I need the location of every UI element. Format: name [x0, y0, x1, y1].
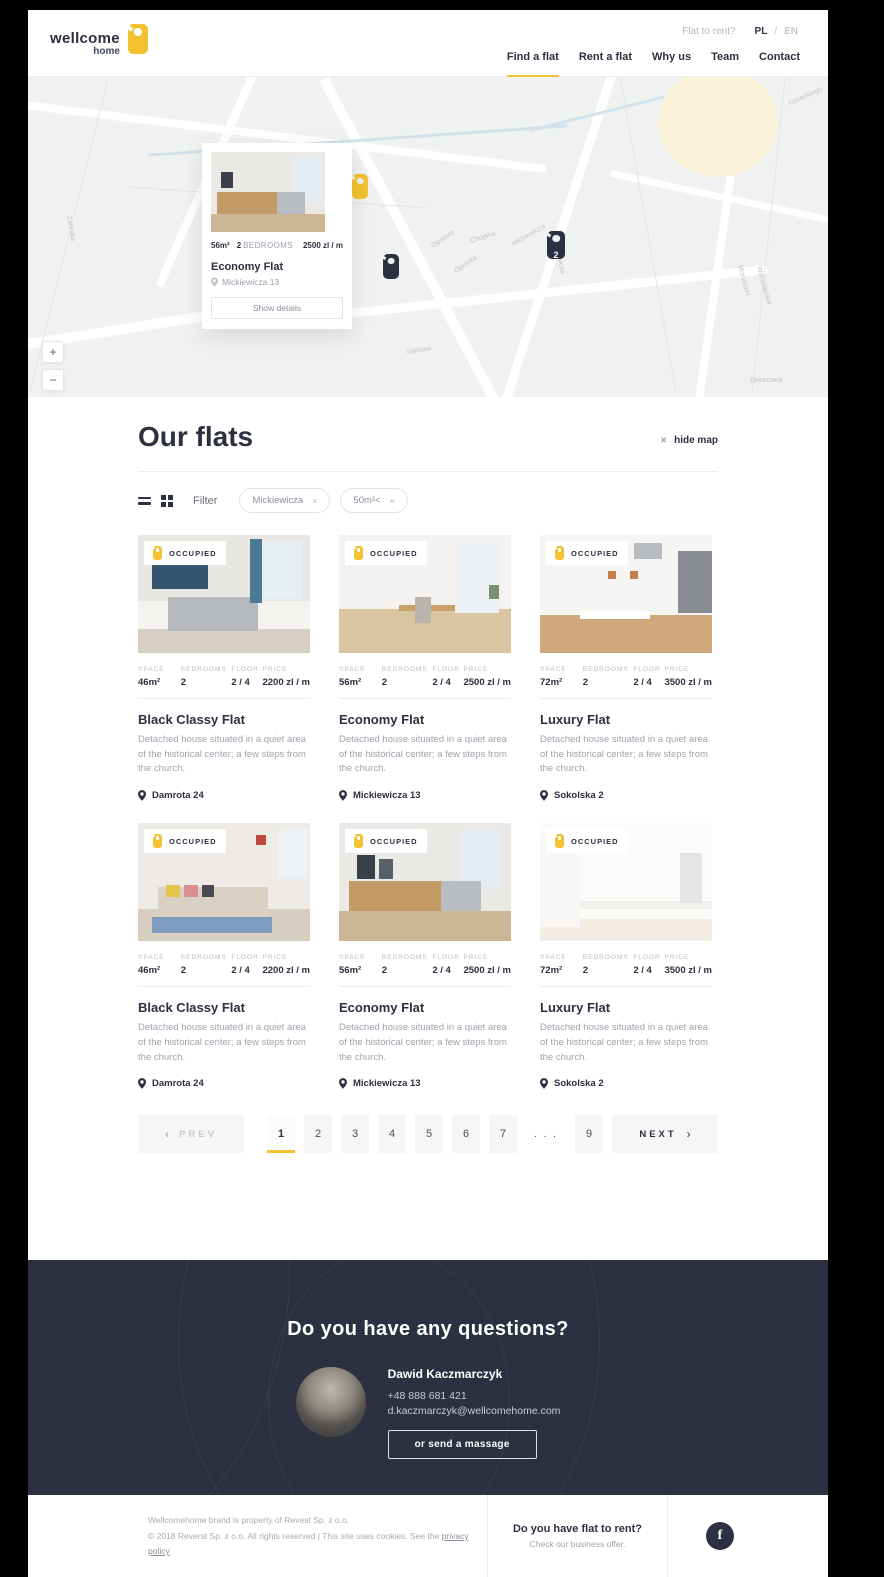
- stat-label-bedrooms: BEDROOMS: [382, 954, 433, 961]
- popup-flat-photo: [211, 152, 325, 232]
- door-hanger-icon: [555, 834, 564, 848]
- map-marker-cluster[interactable]: 2: [547, 231, 565, 264]
- flat-title[interactable]: Luxury Flat: [540, 1000, 712, 1015]
- stat-label-bedrooms: BEDROOMS: [583, 666, 634, 673]
- stat-value-price: 3500 zl / m: [664, 965, 712, 976]
- flat-stats: SPACE46m² BEDROOMS2 FLOOR2 / 4 PRICE2200…: [138, 954, 310, 987]
- hide-map-button[interactable]: × hide map: [660, 433, 718, 453]
- flat-photo[interactable]: OCCUPIED: [339, 535, 511, 653]
- flat-photo[interactable]: OCCUPIED: [540, 535, 712, 653]
- filter-chip[interactable]: 50m²<×: [340, 488, 407, 513]
- flat-address-text: Damrota 24: [152, 1078, 204, 1089]
- marker-count: 2: [547, 250, 565, 260]
- footer: Wellcomehome brand is property of Revest…: [28, 1495, 828, 1577]
- flats-header: Our flats × hide map: [138, 397, 718, 472]
- street-label: Chopina: [470, 230, 497, 245]
- stat-value-floor: 2 / 4: [432, 677, 463, 688]
- nav-item-find-a-flat[interactable]: Find a flat: [507, 51, 559, 76]
- stat-value-space: 72m²: [540, 677, 583, 688]
- flat-description: Detached house situated in a quiet area …: [138, 1021, 310, 1065]
- stat-label-space: SPACE: [138, 954, 181, 961]
- street-label: Opolska: [430, 229, 455, 249]
- door-hanger-icon: [153, 546, 162, 560]
- nav-item-why-us[interactable]: Why us: [652, 51, 691, 76]
- pagination: ‹ PREV 1234567. . .9 NEXT ›: [138, 1115, 718, 1153]
- stat-label-bedrooms: BEDROOMS: [382, 666, 433, 673]
- door-hanger-logo-icon: [128, 24, 148, 54]
- location-pin-icon: [540, 1078, 548, 1089]
- our-flats-section: Our flats × hide map Filter Mickiewicza×…: [28, 397, 828, 1153]
- flat-stats: SPACE56m² BEDROOMS2 FLOOR2 / 4 PRICE2500…: [339, 666, 511, 699]
- location-pin-icon: [339, 1078, 347, 1089]
- location-pin-icon: [339, 790, 347, 801]
- location-pin-icon: [540, 790, 548, 801]
- contact-phone[interactable]: +48 888 681 421: [388, 1390, 467, 1402]
- rent-question[interactable]: Do you have flat to rent?: [513, 1523, 642, 1535]
- street-label: Mickiewicza: [511, 223, 547, 248]
- flat-address-text: Mickiewicza 13: [353, 1078, 421, 1089]
- contact-email[interactable]: d.kaczmarczyk@wellcomehome.com: [388, 1405, 561, 1417]
- footer-social: f: [668, 1495, 828, 1577]
- map-zoom-controls: + −: [42, 341, 64, 391]
- flat-description: Detached house situated in a quiet area …: [339, 733, 511, 777]
- popup-bedrooms-label: BEDROOMS: [243, 241, 293, 250]
- flat-address-text: Sokolska 2: [554, 1078, 604, 1089]
- contact-info: Dawid Kaczmarczyk +48 888 681 421 d.kacz…: [388, 1367, 561, 1459]
- chip-label: 50m²<: [353, 495, 380, 506]
- flat-title[interactable]: Economy Flat: [339, 712, 511, 727]
- flat-title[interactable]: Black Classy Flat: [138, 1000, 310, 1015]
- occupied-badge: OCCUPIED: [144, 829, 226, 853]
- stat-value-floor: 2 / 4: [633, 677, 664, 688]
- contact-row: Dawid Kaczmarczyk +48 888 681 421 d.kacz…: [28, 1367, 828, 1459]
- door-hanger-icon: [153, 834, 162, 848]
- occupied-badge: OCCUPIED: [345, 829, 427, 853]
- flat-address: Damrota 24: [138, 1078, 310, 1089]
- send-message-button[interactable]: or send a massage: [388, 1430, 537, 1459]
- popup-bedrooms-count: 2: [237, 241, 241, 250]
- location-pin-icon: [138, 1078, 146, 1089]
- stat-label-space: SPACE: [339, 666, 382, 673]
- page-number-9[interactable]: 9: [575, 1115, 603, 1153]
- stat-label-price: PRICE: [262, 666, 287, 673]
- prev-page-button[interactable]: ‹ PREV: [138, 1115, 244, 1153]
- occupied-label: OCCUPIED: [370, 837, 418, 846]
- map-area-highlight: [658, 77, 778, 177]
- page-title: Our flats: [138, 421, 253, 453]
- popup-title: Economy Flat: [211, 261, 343, 273]
- logo-text: wellcome home: [50, 30, 120, 57]
- contact-name: Dawid Kaczmarczyk: [388, 1367, 503, 1381]
- next-page-button[interactable]: NEXT ›: [612, 1115, 718, 1153]
- flat-stats: SPACE72m² BEDROOMS2 FLOOR2 / 4 PRICE3500…: [540, 954, 712, 987]
- page-number-5[interactable]: 5: [415, 1115, 443, 1153]
- page-number-7[interactable]: 7: [489, 1115, 517, 1153]
- page-number-2[interactable]: 2: [304, 1115, 332, 1153]
- map-marker-yellow[interactable]: [352, 174, 368, 204]
- filter-chips: Mickiewicza×50m²<×: [239, 488, 417, 513]
- nav-item-rent-a-flat[interactable]: Rent a flat: [579, 51, 632, 76]
- stat-label-price: PRICE: [664, 954, 689, 961]
- stat-value-price: 2200 zl / m: [262, 965, 310, 976]
- stat-value-space: 72m²: [540, 965, 583, 976]
- flat-card: OCCUPIED SPACE46m² BEDROOMS2 FLOOR2 / 4 …: [138, 823, 310, 1089]
- hide-map-label: hide map: [674, 435, 718, 446]
- stat-value-bedrooms: 2: [382, 677, 433, 688]
- map[interactable]: OpolskaOpolskaChopinaMickiewiczaMickiewi…: [28, 77, 828, 397]
- questions-title: Do you have any questions?: [28, 1260, 828, 1341]
- location-pin-icon: [211, 277, 218, 287]
- stat-label-floor: FLOOR: [432, 954, 463, 961]
- door-hanger-icon: [354, 546, 363, 560]
- grid-view-icon[interactable]: [161, 495, 173, 507]
- chip-label: Mickiewicza: [252, 495, 303, 506]
- stat-value-price: 3500 zl / m: [664, 677, 712, 688]
- filter-chip[interactable]: Mickiewicza×: [239, 488, 330, 513]
- stat-value-space: 46m²: [138, 677, 181, 688]
- stat-label-space: SPACE: [339, 954, 382, 961]
- flat-card: OCCUPIED SPACE72m² BEDROOMS2 FLOOR2 / 4 …: [540, 535, 712, 801]
- stat-label-space: SPACE: [540, 666, 583, 673]
- rent-subtitle: Check our business offer.: [530, 1539, 626, 1549]
- flat-description: Detached house situated in a quiet area …: [138, 733, 310, 777]
- popup-address: Mickiewicza 13: [211, 277, 343, 287]
- occupied-badge: OCCUPIED: [144, 541, 226, 565]
- logo[interactable]: wellcome home: [50, 24, 148, 57]
- occupied-badge: OCCUPIED: [546, 541, 628, 565]
- popup-stats: 56m² 2 BEDROOMS 2500 zl / m: [211, 241, 343, 250]
- stat-label-floor: FLOOR: [432, 666, 463, 673]
- door-hanger-marker-icon: [383, 254, 399, 279]
- nav-item-team[interactable]: Team: [711, 51, 739, 76]
- flat-title[interactable]: Economy Flat: [339, 1000, 511, 1015]
- chip-remove-icon[interactable]: ×: [390, 496, 395, 506]
- flat-address: Damrota 24: [138, 790, 310, 801]
- occupied-label: OCCUPIED: [571, 549, 619, 558]
- footer-line2-text: © 2018 Reverst Sp. z o.o. All rights res…: [148, 1531, 442, 1541]
- footer-legal: Wellcomehome brand is property of Revest…: [28, 1495, 488, 1577]
- flat-address: Sokolska 2: [540, 1078, 712, 1089]
- flat-address-text: Sokolska 2: [554, 790, 604, 801]
- flat-card: OCCUPIED SPACE72m² BEDROOMS2 FLOOR2 / 4 …: [540, 823, 712, 1089]
- filter-bar: Filter Mickiewicza×50m²<×: [138, 488, 718, 513]
- stat-label-price: PRICE: [664, 666, 689, 673]
- chip-remove-icon[interactable]: ×: [312, 496, 317, 506]
- stat-value-floor: 2 / 4: [633, 965, 664, 976]
- stat-label-floor: FLOOR: [633, 954, 664, 961]
- stat-label-bedrooms: BEDROOMS: [583, 954, 634, 961]
- stat-label-space: SPACE: [540, 954, 583, 961]
- flat-to-rent-link[interactable]: Flat to rent?: [682, 26, 735, 37]
- map-zoom-out-button[interactable]: −: [42, 369, 64, 391]
- footer-rent: Do you have flat to rent? Check our busi…: [488, 1495, 668, 1577]
- stat-value-space: 46m²: [138, 965, 181, 976]
- avatar: [296, 1367, 366, 1437]
- flat-card: OCCUPIED SPACE56m² BEDROOMS2 FLOOR2 / 4 …: [339, 535, 511, 801]
- stat-label-space: SPACE: [138, 666, 181, 673]
- lang-pl[interactable]: PL: [755, 26, 768, 37]
- main-nav: Find a flatRent a flatWhy usTeamContact: [507, 51, 800, 76]
- flat-photo[interactable]: OCCUPIED: [138, 823, 310, 941]
- lang-separator: /: [774, 26, 777, 37]
- stat-label-floor: FLOOR: [231, 954, 262, 961]
- stat-value-bedrooms: 2: [181, 677, 232, 688]
- street-label: Warszawska: [755, 266, 772, 306]
- stat-value-price: 2500 zl / m: [463, 677, 511, 688]
- stat-value-bedrooms: 2: [382, 965, 433, 976]
- flat-card: OCCUPIED SPACE46m² BEDROOMS2 FLOOR2 / 4 …: [138, 535, 310, 801]
- stat-value-bedrooms: 2: [181, 965, 232, 976]
- occupied-badge: OCCUPIED: [546, 829, 628, 853]
- stat-value-bedrooms: 2: [583, 965, 634, 976]
- page-number-6[interactable]: 6: [452, 1115, 480, 1153]
- location-pin-icon: [138, 790, 146, 801]
- footer-line1: Wellcomehome brand is property of Revest…: [148, 1513, 487, 1528]
- header: wellcome home Flat to rent? PL / EN Find…: [28, 10, 828, 77]
- flat-photo[interactable]: OCCUPIED: [339, 823, 511, 941]
- map-zoom-in-button[interactable]: +: [42, 341, 64, 363]
- close-icon: ×: [660, 433, 667, 447]
- page-numbers: 1234567. . .9: [267, 1115, 603, 1153]
- street-label: Dworcowa: [750, 377, 783, 384]
- flat-card: OCCUPIED SPACE56m² BEDROOMS2 FLOOR2 / 4 …: [339, 823, 511, 1089]
- flat-stats: SPACE72m² BEDROOMS2 FLOOR2 / 4 PRICE3500…: [540, 666, 712, 699]
- stat-value-space: 56m²: [339, 965, 382, 976]
- occupied-label: OCCUPIED: [169, 837, 217, 846]
- next-label: NEXT: [639, 1129, 676, 1140]
- flat-description: Detached house situated in a quiet area …: [339, 1021, 511, 1065]
- questions-section: Do you have any questions? Dawid Kaczmar…: [28, 1260, 828, 1495]
- lang-en[interactable]: EN: [784, 26, 798, 37]
- door-hanger-icon: [354, 834, 363, 848]
- page-number-1[interactable]: 1: [267, 1115, 295, 1153]
- stat-value-bedrooms: 2: [583, 677, 634, 688]
- header-top-right: Flat to rent? PL / EN: [682, 26, 798, 37]
- stat-label-price: PRICE: [463, 666, 488, 673]
- door-hanger-marker-icon: [352, 174, 368, 199]
- stat-value-space: 56m²: [339, 677, 382, 688]
- map-marker-dark[interactable]: [383, 254, 399, 284]
- occupied-label: OCCUPIED: [571, 837, 619, 846]
- street-label: Opolska: [453, 254, 478, 274]
- flat-address-text: Damrota 24: [152, 790, 204, 801]
- flat-address: Mickiewicza 13: [339, 790, 511, 801]
- flat-address-text: Mickiewicza 13: [353, 790, 421, 801]
- popup-address-text: Mickiewicza 13: [222, 277, 279, 287]
- footer-line2: © 2018 Reverst Sp. z o.o. All rights res…: [148, 1529, 487, 1560]
- page-number-3[interactable]: 3: [341, 1115, 369, 1153]
- stat-value-floor: 2 / 4: [432, 965, 463, 976]
- logo-home: home: [93, 46, 120, 57]
- flat-photo[interactable]: OCCUPIED: [540, 823, 712, 941]
- stat-label-floor: FLOOR: [231, 666, 262, 673]
- logo-wellcome: wellcome: [50, 30, 120, 47]
- street-label: Góreckiego: [788, 86, 823, 107]
- flat-address: Mickiewicza 13: [339, 1078, 511, 1089]
- flat-stats: SPACE46m² BEDROOMS2 FLOOR2 / 4 PRICE2200…: [138, 666, 310, 699]
- flats-grid: OCCUPIED SPACE46m² BEDROOMS2 FLOOR2 / 4 …: [138, 535, 718, 1089]
- flat-description: Detached house situated in a quiet area …: [540, 1021, 712, 1065]
- nav-item-contact[interactable]: Contact: [759, 51, 800, 76]
- show-details-button[interactable]: Show details: [211, 297, 343, 319]
- chevron-left-icon: ‹: [165, 1127, 169, 1141]
- stat-value-price: 2200 zl / m: [262, 677, 310, 688]
- map-popup-card: 56m² 2 BEDROOMS 2500 zl / m Economy Flat…: [202, 143, 352, 329]
- street-label: Sądowa: [406, 345, 432, 355]
- stat-label-price: PRICE: [463, 954, 488, 961]
- flat-photo[interactable]: OCCUPIED: [138, 535, 310, 653]
- flat-address: Sokolska 2: [540, 790, 712, 801]
- stat-value-price: 2500 zl / m: [463, 965, 511, 976]
- popup-price: 2500 zl / m: [303, 241, 343, 250]
- page-number-4[interactable]: 4: [378, 1115, 406, 1153]
- prev-label: PREV: [179, 1129, 217, 1140]
- popup-space: 56m²: [211, 241, 230, 250]
- stat-label-bedrooms: BEDROOMS: [181, 954, 232, 961]
- facebook-icon[interactable]: f: [706, 1522, 734, 1550]
- filter-label: Filter: [193, 495, 217, 507]
- flat-stats: SPACE56m² BEDROOMS2 FLOOR2 / 4 PRICE2500…: [339, 954, 511, 987]
- page: wellcome home Flat to rent? PL / EN Find…: [28, 10, 828, 1577]
- stat-label-bedrooms: BEDROOMS: [181, 666, 232, 673]
- flat-description: Detached house situated in a quiet area …: [540, 733, 712, 777]
- page-ellipsis: . . .: [526, 1115, 566, 1153]
- stat-label-price: PRICE: [262, 954, 287, 961]
- door-hanger-icon: [555, 546, 564, 560]
- chevron-right-icon: ›: [687, 1127, 691, 1141]
- occupied-label: OCCUPIED: [169, 549, 217, 558]
- occupied-label: OCCUPIED: [370, 549, 418, 558]
- stat-label-floor: FLOOR: [633, 666, 664, 673]
- stat-value-floor: 2 / 4: [231, 677, 262, 688]
- flat-title[interactable]: Black Classy Flat: [138, 712, 310, 727]
- list-view-icon[interactable]: [138, 497, 151, 505]
- occupied-badge: OCCUPIED: [345, 541, 427, 565]
- stat-value-floor: 2 / 4: [231, 965, 262, 976]
- flat-title[interactable]: Luxury Flat: [540, 712, 712, 727]
